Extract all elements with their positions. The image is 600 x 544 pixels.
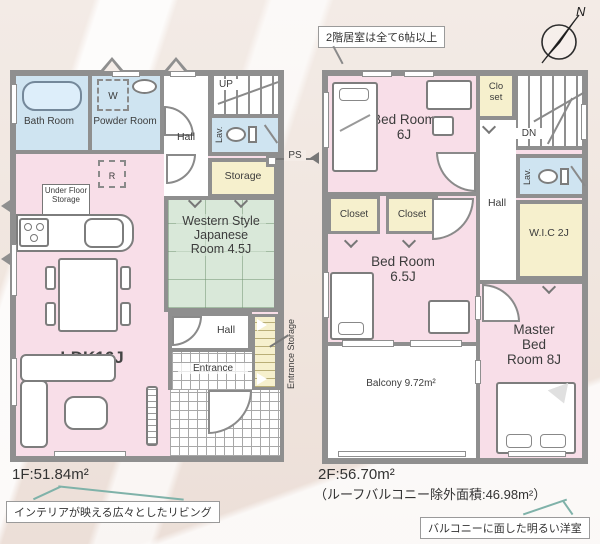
dn-label: DN [516,128,542,139]
desk-icon [428,300,470,334]
bed-icon [330,272,374,340]
balcony: Balcony 9.72m² [328,346,476,458]
window [323,92,329,148]
toilet-icon [560,168,569,185]
vent-arrow [1,253,10,265]
door-arc [432,198,474,240]
door-arc [436,152,476,192]
floor1-plan: Bath Room W Powder Room Hall UP Lav. [10,70,284,462]
window [11,84,17,124]
door-mark [482,120,496,134]
door-arc [172,316,202,346]
dining-table-icon [58,258,118,332]
note-leader [58,485,184,500]
roof-vent-mark [100,57,124,71]
stairs-up: UP [208,76,278,118]
lav-2f-label: Lav. [522,162,532,192]
chair-icon [45,302,56,326]
compass-north-label: N [576,4,586,19]
bed-icon [496,382,576,454]
sofa-icon [20,380,48,448]
sliding-door-mark [257,373,267,385]
ps-label: PS [284,150,306,161]
stair-diagonal [533,92,584,123]
powder-room-label: Powder Room [92,116,158,127]
window [170,71,196,77]
window [11,244,17,296]
bed-icon [332,82,378,172]
floor2-area-note: （ルーフバルコニー除外面積:46.98m²） [314,484,546,503]
hall-2f-label: Hall [480,198,514,210]
window [508,451,566,457]
sliding-door-mark [257,319,267,331]
window [475,296,481,320]
toilet-icon [226,127,246,142]
ps-arrow [310,152,319,164]
window [581,104,587,140]
window [323,272,329,318]
master-bedroom-label: Master Bed Room 8J [506,322,562,367]
sink-icon [132,79,157,94]
sink-icon [84,218,124,248]
sofa-icon [20,354,116,382]
note-leader [33,486,61,500]
tv-board-icon [146,386,158,446]
floor2-plan: Bed Room 6J Closet Closet Bed Room 6.5J … [322,70,588,464]
porch [170,390,280,456]
folding-door-mark [188,194,202,208]
storage-1f-label: Storage [212,171,274,183]
entrance-storage-label: Entrance Storage [286,296,296,412]
window [11,358,17,406]
chair-icon [432,116,454,136]
stove-icon [19,218,49,247]
window [342,340,394,347]
closet-1-label: Closet [331,209,377,220]
lavatory-2f: Lav. [516,154,582,198]
chair-icon [120,302,131,326]
door-arc [166,154,196,184]
floor-plan-page: Bath Room W Powder Room Hall UP Lav. [0,0,600,544]
front-door-arc [208,390,252,434]
bedroom-6j-label: Bed Room 6J [372,112,436,142]
walk-in-closet: W.I.C 2J [516,200,582,280]
callout-top: 2階居室は全て6帖以上 [318,26,445,48]
floor2-area-label: 2F:56.70m² [318,466,395,483]
entrance-label: Entrance [178,363,248,374]
wall [480,280,582,284]
powder-room: W Powder Room [92,76,164,154]
wic-label: W.I.C 2J [529,228,569,240]
callout-top-tail [332,46,343,65]
hall-1f-top-label: Hall [166,132,206,144]
lav-window-line [570,166,585,187]
fridge-icon: R [98,160,126,188]
bath-room-label: Bath Room [18,116,80,127]
note-bottom-right: バルコニーに面した明るい洋室 [420,517,590,539]
entrance-storage-cabinet [252,314,278,390]
japanese-room: Western Style Japanese Room 4.5J [164,196,278,312]
closet-small: Clo set [480,76,516,120]
toilet-icon [248,126,257,143]
balcony-label: Balcony 9.72m² [366,378,436,389]
chair-icon [120,266,131,290]
window [54,451,126,457]
folding-door-mark [234,194,248,208]
window [112,71,140,77]
bath-room: Bath Room [16,76,92,154]
window [404,71,434,77]
closet-small-label: Clo set [483,82,509,103]
window [410,340,462,347]
up-label: UP [214,79,238,90]
window [338,451,466,457]
bedroom-65j-label: Bed Room 6.5J [368,254,438,284]
door-arc [482,284,520,322]
hall-1f-top: Hall [164,76,208,196]
hall-2f: Hall [480,120,516,280]
lav-1f-label: Lav. [214,121,224,149]
lav-window-line [264,124,278,143]
vent-arrow [1,200,10,212]
closet-2-label: Closet [389,209,435,220]
compass-icon: N [532,4,592,68]
chair-icon [45,266,56,290]
hall-1f-bottom: Hall [168,312,252,352]
note-leader [563,501,574,515]
ps-box [266,155,278,167]
roof-vent-mark [164,57,188,71]
note-bottom-left: インテリアが映える広々としたリビング [6,501,220,523]
hall-1f-bottom-label: Hall [206,325,246,337]
closet-1: Closet [328,196,380,234]
window [475,360,481,384]
entrance: Entrance [168,352,252,390]
lavatory-1f: Lav. [208,118,278,156]
washer-icon: W [97,79,129,111]
closet-2: Closet [386,196,438,234]
toilet-icon [538,169,558,184]
japanese-room-label: Western Style Japanese Room 4.5J [176,214,266,256]
bathtub-icon [22,81,82,111]
folding-door-mark [402,234,416,248]
coffee-table-icon [64,396,108,430]
window [362,71,392,77]
desk-icon [426,80,472,110]
folding-door-mark [344,234,358,248]
floor1-area-label: 1F:51.84m² [12,466,89,483]
